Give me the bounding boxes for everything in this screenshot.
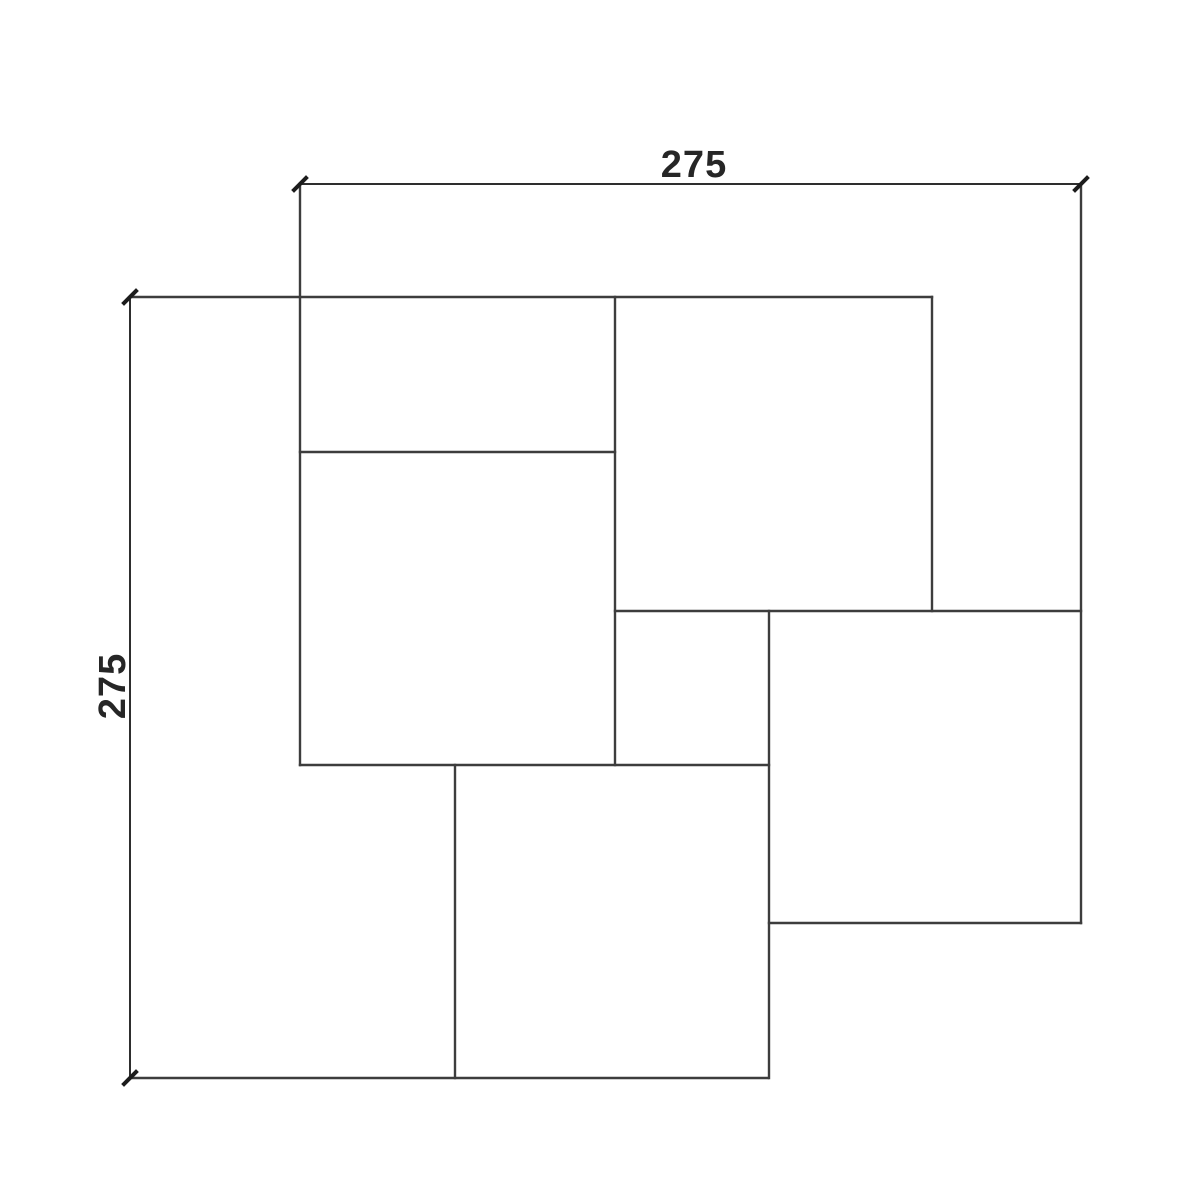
drawing-lines bbox=[130, 184, 1081, 1078]
dimension-label-width: 275 bbox=[661, 146, 727, 184]
dimension-label-height: 275 bbox=[94, 653, 132, 719]
technical-drawing-canvas: 275 275 bbox=[0, 0, 1200, 1200]
dimension-lines bbox=[130, 184, 1081, 1078]
drawing-svg bbox=[0, 0, 1200, 1200]
dimension-ticks bbox=[124, 178, 1087, 1084]
